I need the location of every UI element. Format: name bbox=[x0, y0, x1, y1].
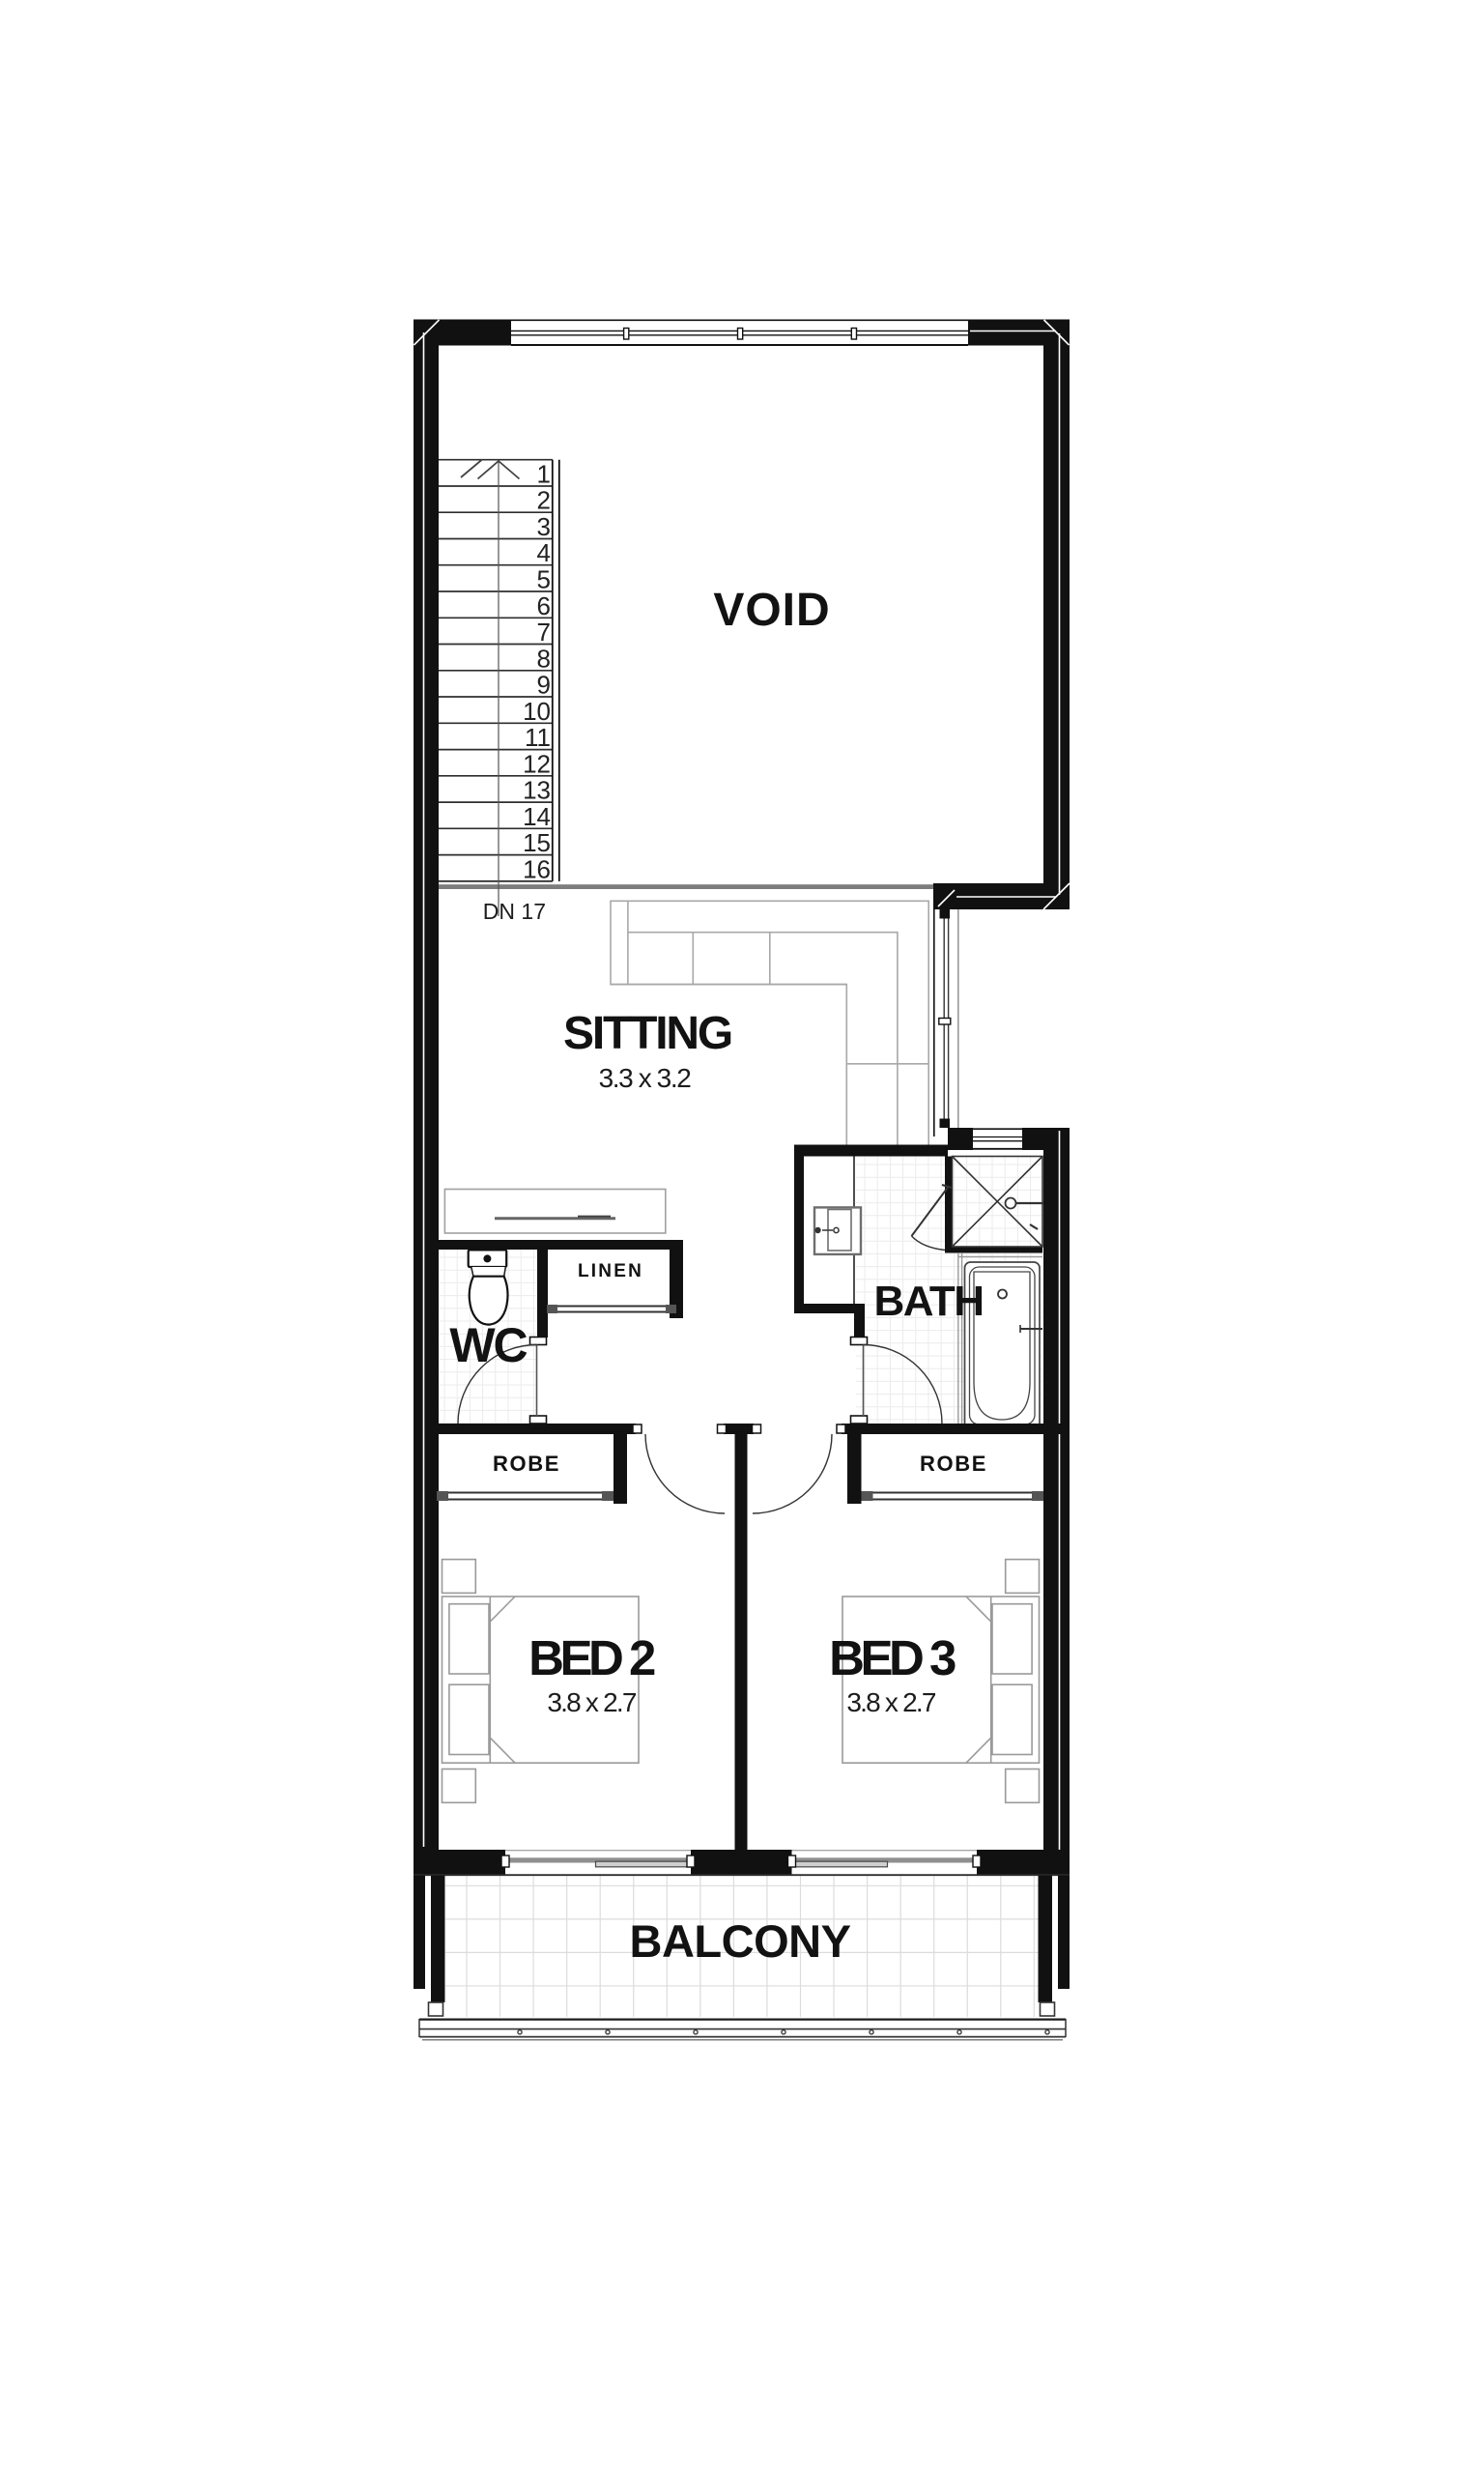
svg-text:BED 3: BED 3 bbox=[829, 1630, 956, 1685]
svg-text:LINEN: LINEN bbox=[578, 1261, 643, 1281]
svg-text:DN: DN bbox=[483, 899, 515, 924]
svg-text:5: 5 bbox=[537, 565, 551, 594]
svg-text:3.3 x 3.2: 3.3 x 3.2 bbox=[599, 1063, 692, 1093]
svg-text:BED 2: BED 2 bbox=[528, 1630, 655, 1685]
svg-text:17: 17 bbox=[521, 899, 546, 924]
svg-text:16: 16 bbox=[523, 854, 551, 883]
svg-text:14: 14 bbox=[523, 802, 551, 831]
svg-text:ROBE: ROBE bbox=[493, 1452, 560, 1476]
svg-text:13: 13 bbox=[523, 776, 551, 805]
svg-text:3.8 x 2.7: 3.8 x 2.7 bbox=[846, 1687, 935, 1717]
svg-text:ROBE: ROBE bbox=[920, 1452, 987, 1476]
svg-text:WC: WC bbox=[449, 1318, 527, 1372]
svg-text:8: 8 bbox=[537, 644, 551, 673]
svg-text:3.8 x 2.7: 3.8 x 2.7 bbox=[547, 1687, 636, 1717]
svg-text:10: 10 bbox=[523, 697, 551, 726]
svg-text:15: 15 bbox=[523, 828, 551, 857]
svg-text:4: 4 bbox=[537, 538, 551, 567]
svg-text:BALCONY: BALCONY bbox=[630, 1915, 851, 1967]
svg-text:3: 3 bbox=[537, 512, 551, 541]
svg-text:1: 1 bbox=[537, 460, 551, 489]
svg-text:11: 11 bbox=[525, 723, 551, 752]
svg-text:SITTING: SITTING bbox=[563, 1008, 731, 1059]
svg-text:BATH: BATH bbox=[874, 1278, 984, 1325]
svg-text:7: 7 bbox=[537, 618, 551, 647]
svg-text:9: 9 bbox=[537, 671, 551, 700]
svg-text:VOID: VOID bbox=[713, 585, 830, 636]
svg-text:2: 2 bbox=[537, 486, 551, 515]
svg-text:12: 12 bbox=[523, 749, 551, 778]
svg-text:6: 6 bbox=[537, 591, 551, 620]
